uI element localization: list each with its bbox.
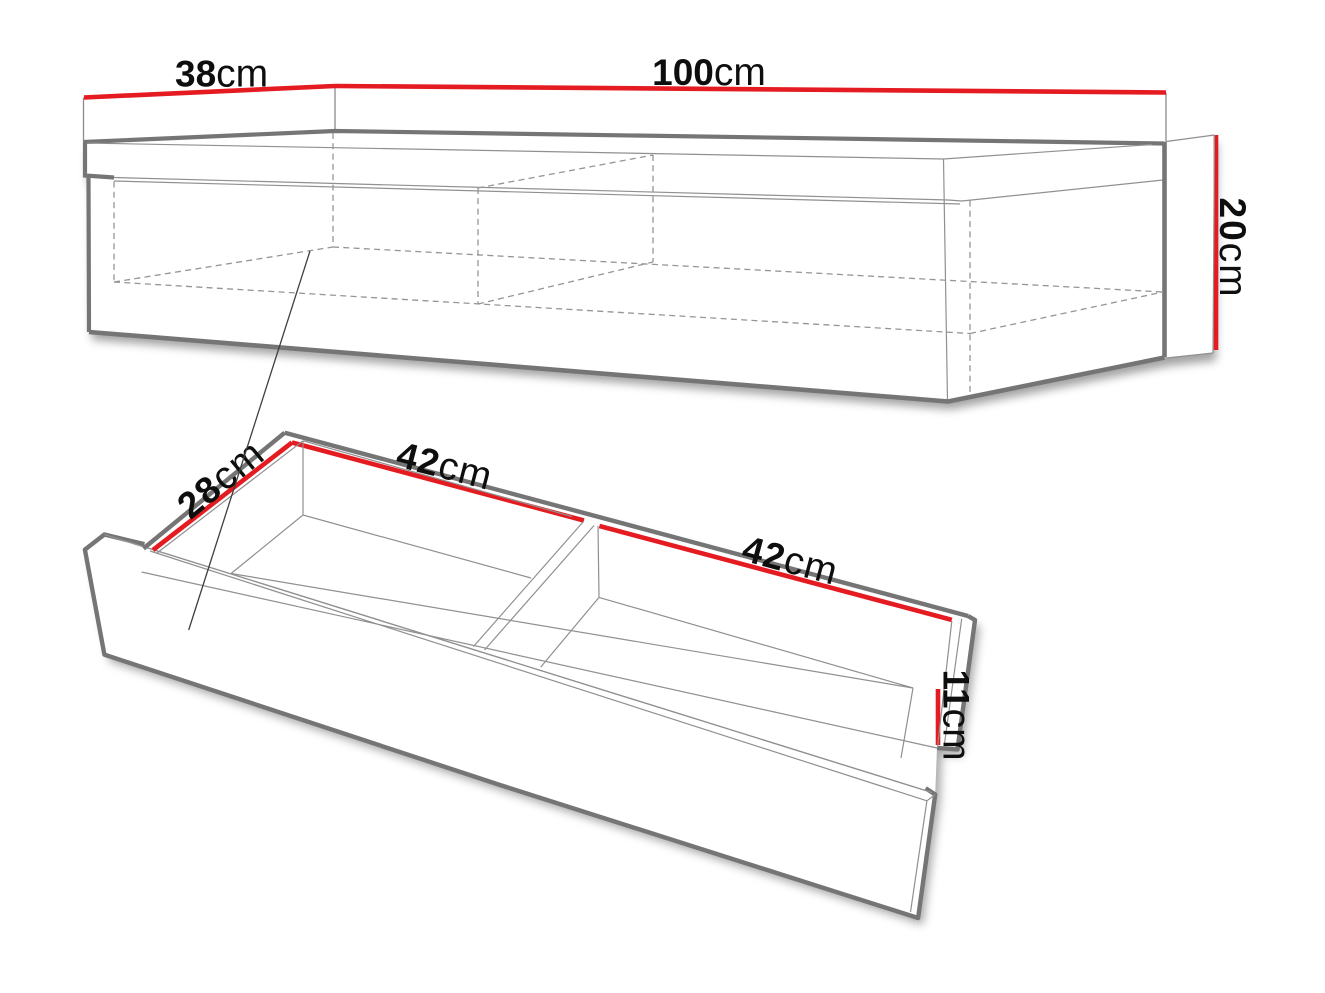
svg-text:100cm: 100cm	[652, 51, 766, 94]
svg-text:11cm: 11cm	[935, 670, 978, 761]
svg-text:38cm: 38cm	[175, 53, 268, 96]
svg-text:20cm: 20cm	[1211, 198, 1254, 299]
